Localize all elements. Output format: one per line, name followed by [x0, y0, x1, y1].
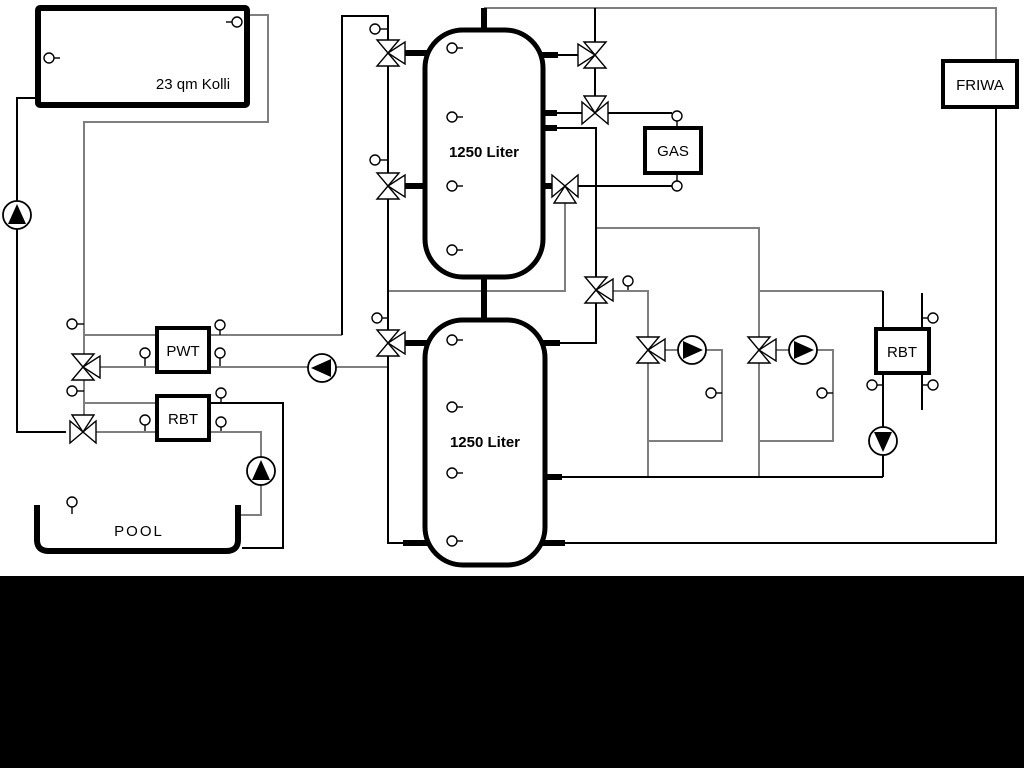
- temperature-sensor-icon: [140, 415, 150, 425]
- temperature-sensor-icon: [216, 388, 226, 398]
- temperature-sensor-icon: [140, 348, 150, 358]
- temperature-sensor-icon: [372, 313, 382, 323]
- tank-top-label: 1250 Liter: [449, 144, 519, 161]
- temperature-sensor-icon: [232, 17, 242, 27]
- temperature-sensor-icon: [867, 380, 877, 390]
- temperature-sensor-icon: [67, 386, 77, 396]
- temperature-sensor-icon: [672, 111, 682, 121]
- tank-bottom-label: 1250 Liter: [450, 434, 520, 451]
- rbt-right-label: RBT: [887, 344, 917, 361]
- temperature-sensor-icon: [44, 53, 54, 63]
- hydraulic-schematic: POOL23 qm Kolli1250 Liter1250 LiterGASFR…: [0, 0, 1024, 768]
- temperature-sensor-icon: [447, 335, 457, 345]
- collector-label: 23 qm Kolli: [156, 76, 230, 93]
- friwa-station-label: FRIWA: [956, 77, 1004, 94]
- schematic-page: POOL23 qm Kolli1250 Liter1250 LiterGASFR…: [0, 0, 1024, 768]
- temperature-sensor-icon: [447, 245, 457, 255]
- footer-band: [0, 576, 1024, 768]
- temperature-sensor-icon: [215, 320, 225, 330]
- temperature-sensor-icon: [447, 536, 457, 546]
- temperature-sensor-icon: [623, 276, 633, 286]
- gas-boiler-label: GAS: [657, 143, 689, 160]
- temperature-sensor-icon: [447, 468, 457, 478]
- temperature-sensor-icon: [928, 313, 938, 323]
- temperature-sensor-icon: [928, 380, 938, 390]
- temperature-sensor-icon: [67, 497, 77, 507]
- temperature-sensor-icon: [706, 388, 716, 398]
- temperature-sensor-icon: [447, 181, 457, 191]
- temperature-sensor-icon: [447, 402, 457, 412]
- temperature-sensor-icon: [447, 43, 457, 53]
- pwt-heat-exchanger-label: PWT: [166, 343, 199, 360]
- rbt-left-label: RBT: [168, 411, 198, 428]
- temperature-sensor-icon: [215, 348, 225, 358]
- temperature-sensor-icon: [216, 417, 226, 427]
- temperature-sensor-icon: [370, 155, 380, 165]
- temperature-sensor-icon: [447, 112, 457, 122]
- temperature-sensor-icon: [672, 181, 682, 191]
- temperature-sensor-icon: [817, 388, 827, 398]
- pool-label: POOL: [114, 523, 164, 540]
- temperature-sensor-icon: [370, 24, 380, 34]
- temperature-sensor-icon: [67, 319, 77, 329]
